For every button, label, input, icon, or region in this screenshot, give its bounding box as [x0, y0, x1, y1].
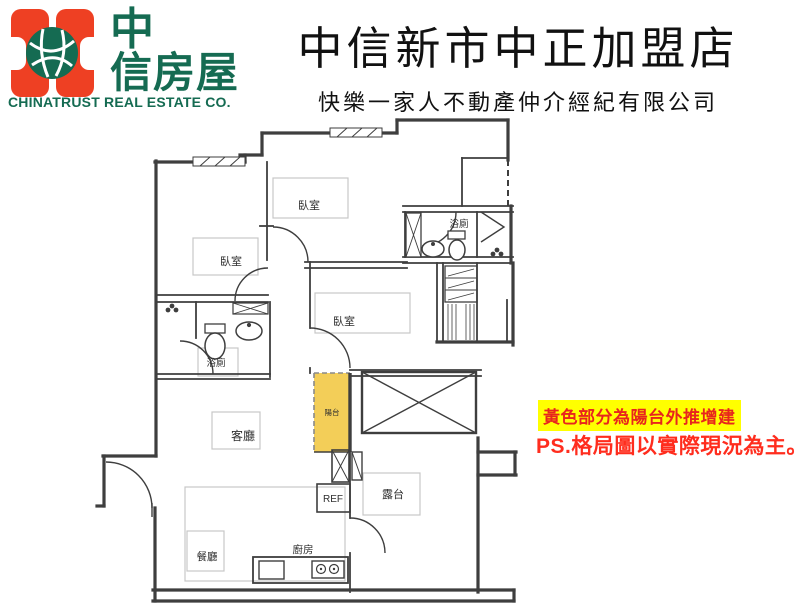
toilet-icon	[448, 231, 465, 239]
ps-note: PS.格局圖以實際現況為主。	[536, 430, 800, 460]
kitchen-fixtures	[253, 557, 348, 583]
kitchen-sink	[259, 561, 284, 579]
room-label-bedroom-left: 臥室	[220, 254, 242, 268]
plant-icon	[491, 248, 504, 257]
left-bathroom-fixtures	[166, 303, 268, 359]
toilet-icon	[205, 324, 225, 333]
globe-icon	[26, 27, 78, 79]
room-label-bath-right: 浴廁	[449, 218, 469, 230]
flyer-canvas: 中 信房屋 CHINATRUST REAL ESTATE CO. 中信新市中正加…	[0, 0, 800, 614]
brand-line1: 中	[110, 8, 239, 52]
plant-icon	[166, 304, 179, 313]
highlight-note: 黃色部分為陽台外推增建	[538, 400, 741, 431]
outer-walls	[97, 120, 516, 601]
room-label-dining: 餐廳	[197, 550, 218, 563]
chinatrust-logo-icon	[10, 8, 96, 100]
logo-left-notch	[10, 37, 26, 70]
floorplan: 臥室 臥室 臥室 浴廁 浴廁 客廳 陽台 露台 餐廳 廚房 REF	[95, 110, 540, 614]
room-label-bedroom-mid: 臥室	[333, 314, 355, 328]
store-title: 中信新市中正加盟店	[248, 12, 788, 77]
shaft-shelves	[445, 266, 477, 340]
brand-english: CHINATRUST REAL ESTATE CO.	[8, 94, 278, 110]
room-label-living: 客廳	[231, 428, 255, 443]
header-titles: 中信新市中正加盟店 快樂一家人不動產仲介經紀有限公司	[248, 12, 788, 117]
room-label-kitchen: 廚房	[293, 543, 314, 556]
void-x-area	[362, 372, 476, 433]
room-label-balcony: 陽台	[325, 407, 340, 417]
room-label-bath-left: 浴廁	[206, 357, 226, 369]
brand-logotype: 中 信房屋	[110, 8, 239, 95]
room-label-bedroom-top: 臥室	[298, 198, 320, 212]
room-label-terrace: 露台	[382, 487, 404, 501]
logo-right-notch	[80, 37, 96, 70]
label-fridge: REF	[323, 494, 343, 505]
brand-line2: 信房屋	[110, 53, 239, 95]
